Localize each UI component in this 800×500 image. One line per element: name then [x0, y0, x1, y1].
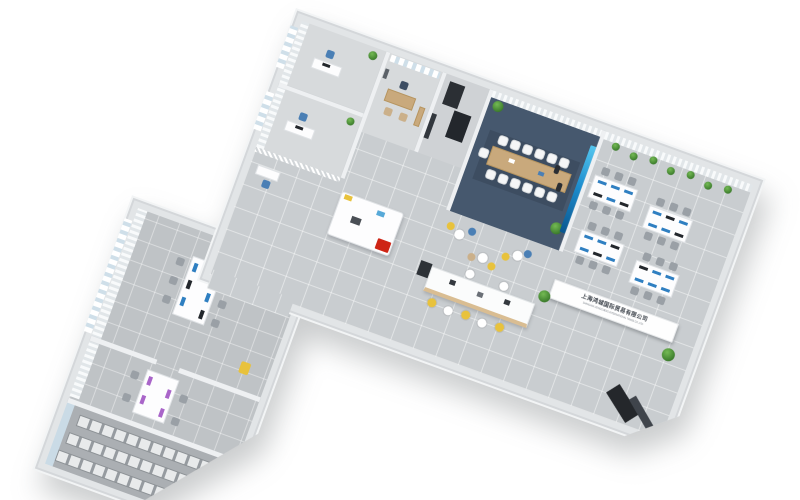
office-chair: [170, 417, 180, 427]
office-chair: [614, 171, 624, 181]
render-canvas: 上海鸿城国际贸易有限公司 SHANGHAI HONGCHENG INTERNAT…: [0, 0, 800, 500]
office-chair: [682, 207, 692, 217]
office-chair: [668, 262, 678, 272]
office-chair: [600, 226, 610, 236]
office-chair: [121, 392, 131, 402]
office-chair: [175, 257, 185, 267]
office-chair: [587, 221, 597, 231]
office-chair: [178, 394, 188, 404]
desk: [132, 369, 180, 424]
office-chair: [642, 252, 652, 262]
office-chair: [627, 176, 637, 186]
office-chair: [655, 197, 665, 207]
office-chair: [655, 257, 665, 267]
office-chair: [161, 294, 171, 304]
office-chair: [130, 370, 140, 380]
office-chair: [601, 167, 611, 177]
office-chair: [168, 275, 178, 285]
main-wing: 上海鸿城国际贸易有限公司 SHANGHAI HONGCHENG INTERNAT…: [197, 8, 766, 452]
office-chair: [613, 231, 623, 241]
office-chair: [669, 202, 679, 212]
